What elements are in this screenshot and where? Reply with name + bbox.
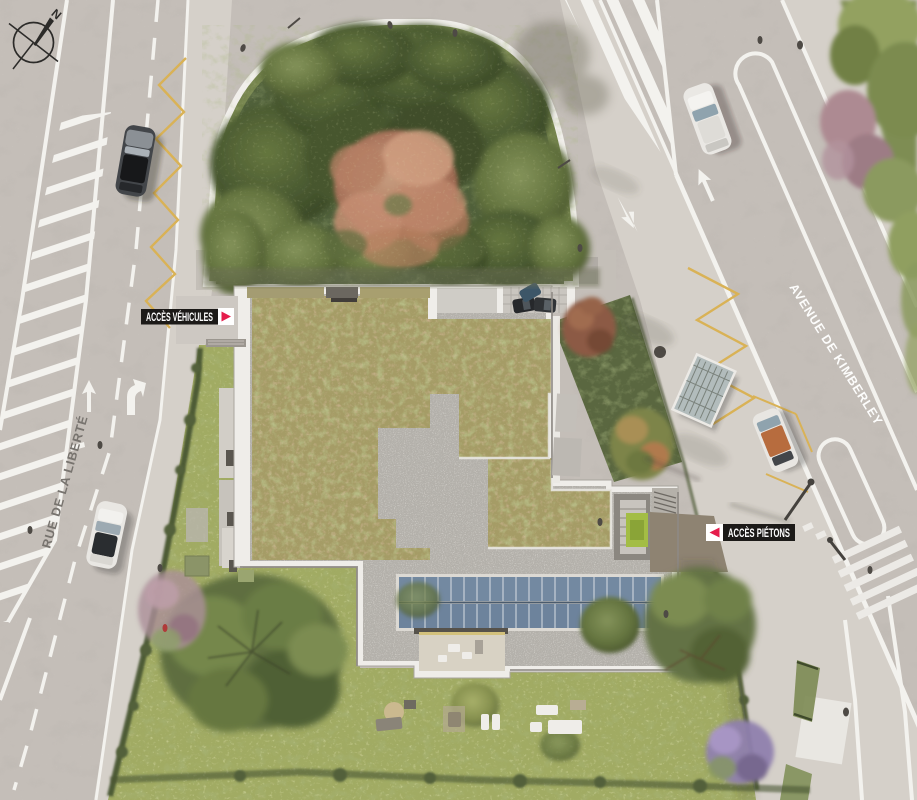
svg-text:ACCÈS VÉHICULES: ACCÈS VÉHICULES	[146, 309, 213, 324]
svg-text:ACCÈS PIÉTONS: ACCÈS PIÉTONS	[728, 525, 790, 540]
